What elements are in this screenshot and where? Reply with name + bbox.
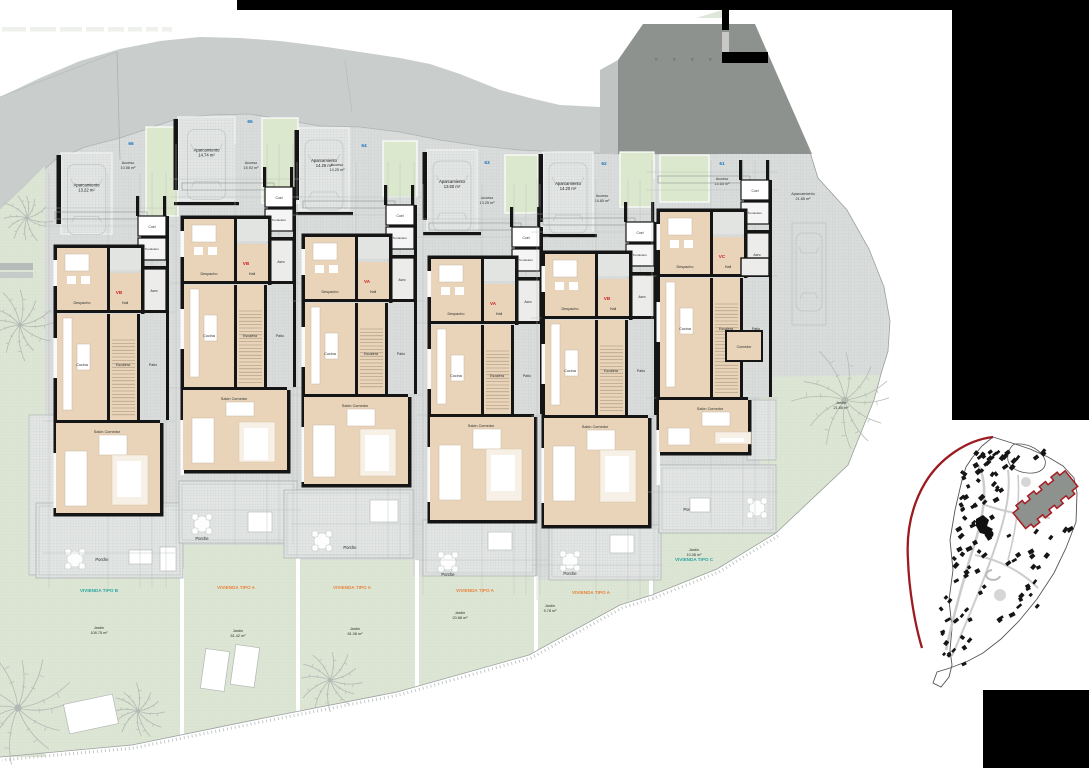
svg-text:Escalera: Escalera <box>490 374 504 378</box>
svg-text:Acceso: Acceso <box>331 163 343 167</box>
svg-text:VB: VB <box>243 261 250 266</box>
svg-text:Patio: Patio <box>276 334 284 338</box>
svg-text:VC: VC <box>719 254 726 259</box>
svg-text:Acceso: Acceso <box>481 196 493 200</box>
svg-text:10.56 m²: 10.56 m² <box>121 166 137 170</box>
svg-text:Acceso: Acceso <box>716 177 728 181</box>
svg-text:VB: VB <box>604 296 611 301</box>
svg-text:Cocina: Cocina <box>324 352 337 356</box>
svg-text:Cocina: Cocina <box>76 363 89 367</box>
svg-text:Jardín: Jardín <box>455 611 466 615</box>
svg-text:81.42 m²: 81.42 m² <box>231 634 247 638</box>
svg-text:Jardín: Jardín <box>689 548 700 552</box>
svg-text:Patio: Patio <box>523 374 531 378</box>
svg-text:Tendedero: Tendedero <box>633 253 648 257</box>
svg-text:Acceso: Acceso <box>245 161 257 165</box>
svg-text:64: 64 <box>361 143 367 149</box>
svg-text:Hall: Hall <box>725 265 732 269</box>
svg-text:Despacho: Despacho <box>200 272 217 276</box>
svg-text:Salón Comedor: Salón Comedor <box>582 425 609 429</box>
svg-text:VIVIENDA TIPO B: VIVIENDA TIPO B <box>80 588 119 593</box>
svg-text:Jardín: Jardín <box>350 627 361 631</box>
svg-text:Hall: Hall <box>122 301 129 305</box>
svg-text:Cocina: Cocina <box>203 334 216 338</box>
svg-text:61: 61 <box>719 161 725 167</box>
svg-text:63: 63 <box>484 160 490 166</box>
svg-text:Despacho: Despacho <box>676 265 693 269</box>
svg-text:Porche: Porche <box>343 545 357 550</box>
svg-text:VIVIENDA TIPO A: VIVIENDA TIPO A <box>572 590 611 595</box>
svg-text:Patio: Patio <box>637 369 645 373</box>
svg-text:Tendedero: Tendedero <box>393 236 408 240</box>
svg-text:VIVIENDA TIPO A: VIVIENDA TIPO A <box>456 588 495 593</box>
svg-text:Cuel: Cuel <box>276 196 283 200</box>
svg-text:15.92 m²: 15.92 m² <box>244 166 260 170</box>
svg-text:Jardín: Jardín <box>233 629 244 633</box>
svg-text:Salón Comedor: Salón Comedor <box>697 407 724 411</box>
svg-text:81.08 m²: 81.08 m² <box>348 632 364 636</box>
svg-text:14.65 m²: 14.65 m² <box>595 199 611 203</box>
svg-text:Aseo: Aseo <box>524 300 531 304</box>
svg-text:Porche: Porche <box>95 557 109 562</box>
svg-text:65: 65 <box>247 119 253 125</box>
svg-text:VIVIENDA TIPO A: VIVIENDA TIPO A <box>333 585 372 590</box>
svg-text:10.08 m²: 10.08 m² <box>687 553 703 557</box>
svg-text:Escalera: Escalera <box>116 363 130 367</box>
svg-text:Porche: Porche <box>441 572 455 577</box>
svg-text:108.75 m²: 108.75 m² <box>90 631 108 635</box>
svg-text:Despacho: Despacho <box>321 290 338 294</box>
svg-text:Cuel: Cuel <box>397 214 404 218</box>
svg-text:VA: VA <box>364 279 371 284</box>
svg-text:Aseo: Aseo <box>638 295 645 299</box>
svg-text:Hall: Hall <box>249 272 256 276</box>
svg-text:Aseo: Aseo <box>277 260 284 264</box>
svg-text:14.74 m²: 14.74 m² <box>198 153 215 158</box>
svg-text:VIVIENDA TIPO C: VIVIENDA TIPO C <box>675 557 714 562</box>
svg-text:Jardín: Jardín <box>94 626 105 630</box>
svg-text:Tendedero: Tendedero <box>272 218 287 222</box>
svg-text:Cocina: Cocina <box>450 374 463 378</box>
svg-text:Cuel: Cuel <box>637 231 644 235</box>
svg-text:13.60 m²: 13.60 m² <box>444 184 461 189</box>
svg-text:Jardín: Jardín <box>836 401 847 405</box>
svg-text:Salón Comedor: Salón Comedor <box>342 404 369 408</box>
svg-text:Patio: Patio <box>149 363 157 367</box>
svg-text:Patio: Patio <box>397 352 405 356</box>
svg-text:Despacho: Despacho <box>447 312 464 316</box>
svg-text:Cocina: Cocina <box>679 327 692 331</box>
svg-text:Salón Comedor: Salón Comedor <box>94 430 121 434</box>
svg-text:Tendedero: Tendedero <box>748 211 763 215</box>
svg-text:14.20 m²: 14.20 m² <box>560 186 577 191</box>
svg-text:Aseo: Aseo <box>150 289 157 293</box>
svg-text:Tendedero: Tendedero <box>145 247 160 251</box>
svg-text:62: 62 <box>601 161 607 167</box>
svg-text:Despacho: Despacho <box>561 307 578 311</box>
svg-text:20.88 m²: 20.88 m² <box>453 616 469 620</box>
svg-text:Escalera: Escalera <box>604 369 618 373</box>
svg-text:Cuel: Cuel <box>752 189 759 193</box>
svg-text:21.85 m²: 21.85 m² <box>834 406 850 410</box>
svg-text:Acceso: Acceso <box>596 194 608 198</box>
svg-text:Porche: Porche <box>563 571 577 576</box>
svg-text:Comedor: Comedor <box>737 345 753 349</box>
svg-text:Cocina: Cocina <box>564 369 577 373</box>
svg-text:13.22 m²: 13.22 m² <box>78 188 95 193</box>
svg-text:14.65 m²: 14.65 m² <box>715 182 731 186</box>
svg-text:Porche: Porche <box>195 536 209 541</box>
svg-text:Hall: Hall <box>370 290 377 294</box>
svg-text:VIVIENDA TIPO A: VIVIENDA TIPO A <box>217 585 256 590</box>
svg-text:Aseo: Aseo <box>398 278 405 282</box>
svg-text:Despacho: Despacho <box>73 301 90 305</box>
svg-text:VA: VA <box>490 301 497 306</box>
svg-text:Salón Comedor: Salón Comedor <box>221 397 248 401</box>
svg-text:Escalera: Escalera <box>364 352 378 356</box>
svg-text:Aseo: Aseo <box>753 253 760 257</box>
svg-text:21.85 m²: 21.85 m² <box>796 197 812 201</box>
svg-text:Jardín: Jardín <box>545 604 556 608</box>
svg-text:Aparcamiento: Aparcamiento <box>791 192 814 196</box>
svg-text:Acceso: Acceso <box>122 161 134 165</box>
svg-text:66: 66 <box>128 141 134 147</box>
svg-text:Tendedero: Tendedero <box>519 258 534 262</box>
svg-text:Escalera: Escalera <box>243 334 257 338</box>
svg-text:Cuel: Cuel <box>523 236 530 240</box>
svg-text:14.25 m²: 14.25 m² <box>330 168 346 172</box>
svg-text:Hall: Hall <box>610 307 617 311</box>
svg-text:VB: VB <box>116 290 123 295</box>
svg-text:9.78 m²: 9.78 m² <box>544 609 558 613</box>
svg-text:Hall: Hall <box>496 312 503 316</box>
svg-text:Salón Comedor: Salón Comedor <box>468 424 495 428</box>
svg-text:Cuel: Cuel <box>149 225 156 229</box>
